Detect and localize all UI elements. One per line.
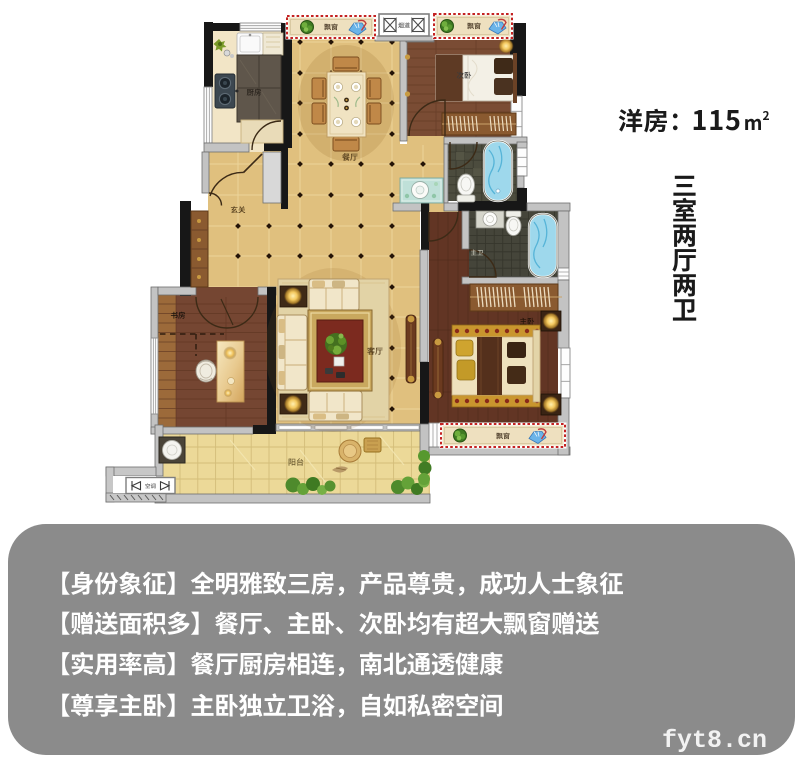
svg-text:fyt8.cn: fyt8.cn [662,726,767,755]
